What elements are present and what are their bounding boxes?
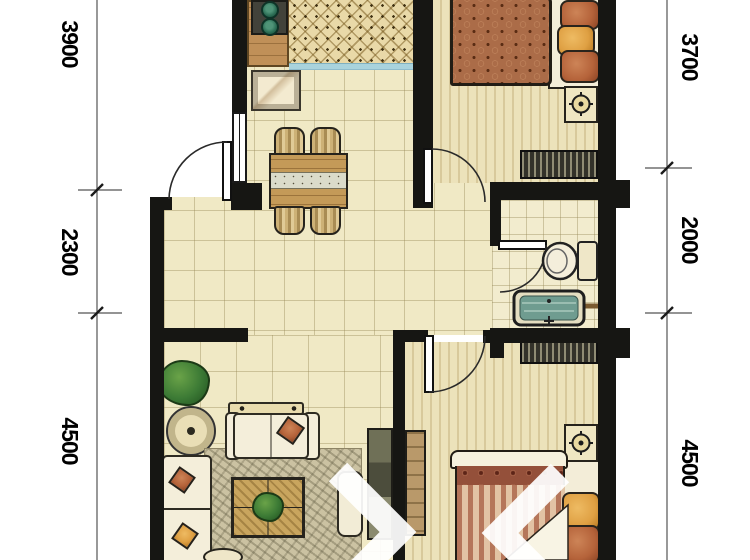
dim-label-left-2300: 2300 (57, 207, 83, 297)
toilet-tank-icon (578, 242, 597, 280)
bedroom-top-door-swing-icon (432, 149, 485, 202)
bedroom-bottom-door-swing-icon (429, 336, 485, 392)
dim-label-right-2000: 2000 (677, 195, 703, 285)
plan-overlay (0, 0, 750, 560)
bedroom-top-door-leaf (424, 149, 432, 203)
floor-plan: 3900 2300 4500 3700 2000 4500 (0, 0, 750, 560)
tub-drain-icon (547, 299, 551, 303)
bathroom-door-swing-icon (500, 245, 546, 292)
toilet-bowl-icon (543, 243, 577, 279)
dim-label-left-3900: 3900 (57, 0, 83, 89)
entry-door-swing-icon (169, 142, 227, 199)
entry-door-leaf (223, 142, 231, 200)
lamp-icon (569, 431, 593, 455)
bathroom-door-leaf (499, 241, 546, 249)
lamp-icon (569, 92, 593, 116)
bedroom-bottom-door-leaf (425, 336, 433, 392)
dim-label-right-3700: 3700 (677, 12, 703, 102)
dim-label-left-4500: 4500 (57, 396, 83, 486)
chevron-right-icon[interactable] (338, 472, 398, 560)
dimension-line-left (78, 0, 122, 560)
dim-label-right-4500: 4500 (677, 418, 703, 508)
